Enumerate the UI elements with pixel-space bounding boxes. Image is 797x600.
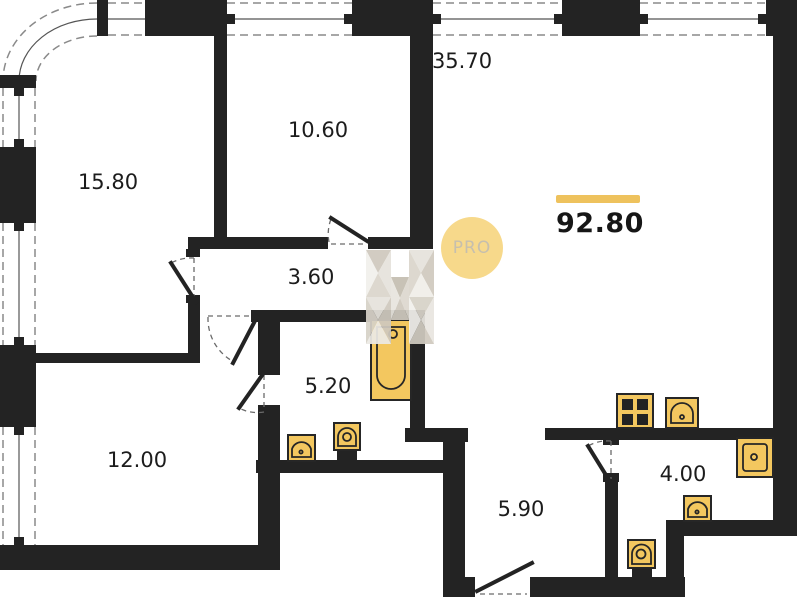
- window-top-1: [108, 3, 145, 35]
- washbasin-bathroom-icon: [288, 435, 315, 461]
- room-label-room-middle: 10.60: [288, 118, 348, 142]
- door-bedroom-bottom-left-hall: [208, 316, 257, 363]
- wall-sink-icon: [737, 438, 773, 477]
- door-room-top-middle: [328, 218, 367, 244]
- room-label-living-room: 35.70: [432, 49, 492, 73]
- stove-icon: [617, 394, 653, 428]
- room-label-corridor: 5.90: [498, 497, 545, 521]
- toilet-bathroom-icon: [334, 423, 360, 461]
- pro-watermark-badge: PRO: [441, 217, 503, 279]
- floor-plan-drawing: [0, 0, 797, 600]
- toilet-wc-icon: [628, 540, 655, 577]
- total-area-value: 92.80: [556, 208, 644, 239]
- total-area-block: 92.80: [556, 195, 644, 239]
- window-top-3: [433, 3, 562, 35]
- door-entrance: [477, 563, 532, 594]
- window-left-3: [3, 427, 35, 545]
- window-top-2: [227, 3, 352, 35]
- room-label-bathroom: 5.20: [305, 374, 352, 398]
- washbasin-wc-icon: [684, 496, 711, 521]
- total-area-underline: [556, 195, 640, 203]
- door-wc: [588, 441, 611, 480]
- room-label-bedroom-top: 15.80: [78, 170, 138, 194]
- fixtures-layer: [288, 320, 773, 577]
- room-label-bedroom-bottom: 12.00: [107, 448, 167, 472]
- window-top-4: [640, 3, 766, 35]
- floor-plan: 35.70 15.80 10.60 3.60 5.20 12.00 5.90 4…: [0, 0, 797, 600]
- window-left-1: [3, 88, 35, 147]
- window-left-2: [3, 223, 35, 345]
- kitchen-washbasin-icon: [666, 398, 698, 428]
- room-label-hallway: 3.60: [288, 265, 335, 289]
- door-bedroom-top-left: [171, 258, 196, 302]
- room-label-wc: 4.00: [660, 462, 707, 486]
- window-corner-curve: [3, 3, 97, 81]
